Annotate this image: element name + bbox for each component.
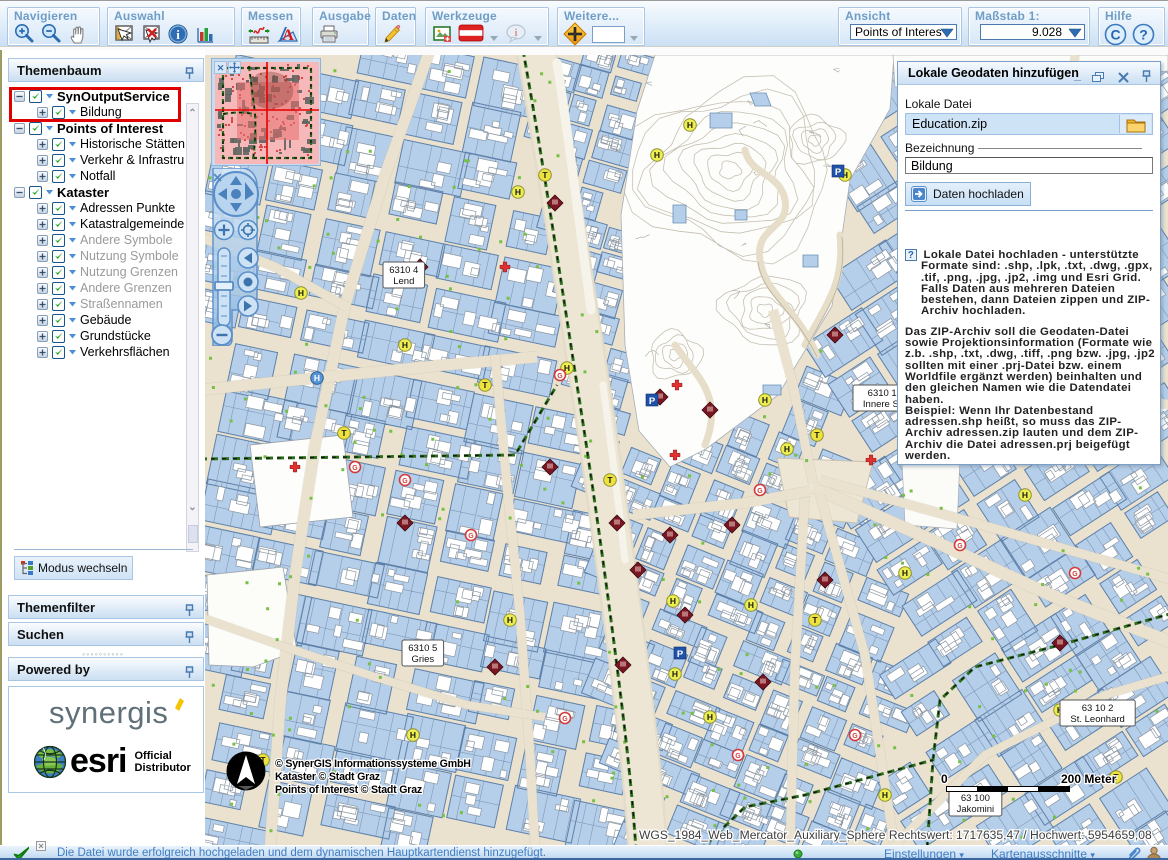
svg-text:Points of Interest © Stadt Gra: Points of Interest © Stadt Graz (275, 784, 422, 796)
svg-text:63 100: 63 100 (961, 793, 990, 804)
svg-text:Innere St: Innere St (863, 399, 902, 410)
svg-text:Lend: Lend (393, 276, 414, 287)
svg-text:H: H (410, 730, 416, 740)
svg-text:T: T (482, 380, 488, 390)
svg-text:H: H (748, 600, 754, 610)
svg-text:i: i (515, 28, 518, 39)
svg-text:?: ? (1139, 27, 1148, 43)
svg-text:H: H (882, 790, 888, 800)
svg-text:T: T (812, 615, 818, 625)
svg-text:H: H (670, 596, 676, 606)
svg-text:Kataster © Stadt Graz: Kataster © Stadt Graz (275, 771, 380, 783)
svg-text:H: H (762, 395, 768, 405)
svg-text:H: H (515, 187, 521, 197)
svg-text:H: H (1022, 490, 1028, 500)
svg-text:H: H (402, 340, 408, 350)
svg-text:H: H (507, 615, 513, 625)
svg-text:63 10 2: 63 10 2 (1082, 703, 1114, 714)
svg-text:H: H (784, 444, 790, 454)
svg-text:C: C (1110, 27, 1120, 43)
svg-text:i: i (176, 27, 180, 42)
svg-text:A: A (282, 27, 294, 44)
svg-text:6310 4: 6310 4 (389, 265, 418, 276)
svg-text:St. Leonhard: St. Leonhard (1070, 714, 1124, 725)
svg-text:G: G (557, 373, 563, 380)
svg-text:H: H (687, 120, 693, 130)
svg-text:H: H (672, 669, 678, 679)
svg-text:0: 0 (941, 772, 948, 786)
svg-text:P: P (835, 167, 842, 178)
svg-text:G: G (1072, 571, 1078, 578)
svg-text:G: G (402, 478, 408, 485)
svg-text:Gries: Gries (411, 654, 434, 665)
svg-text:H: H (314, 373, 320, 383)
svg-text:G: G (757, 488, 763, 495)
svg-text:H: H (707, 712, 713, 722)
svg-text:6310 5: 6310 5 (408, 643, 437, 654)
svg-text:P: P (649, 396, 656, 407)
svg-text:G: G (852, 733, 858, 740)
svg-text:H: H (298, 288, 304, 298)
svg-text:T: T (814, 430, 820, 440)
svg-text:T: T (341, 428, 347, 438)
svg-text:Jakomini: Jakomini (957, 804, 995, 815)
svg-text:G: G (735, 753, 741, 760)
svg-text:6310 1: 6310 1 (868, 388, 897, 399)
svg-text:T: T (607, 475, 613, 485)
svg-text:G: G (468, 533, 474, 540)
svg-text:G: G (352, 465, 358, 472)
svg-text:H: H (654, 150, 660, 160)
svg-text:H: H (902, 568, 908, 578)
svg-text:G: G (562, 716, 568, 723)
svg-text:G: G (957, 543, 963, 550)
svg-text:T: T (542, 170, 548, 180)
svg-text:WGS_1984_Web_Mercator_Auxiliar: WGS_1984_Web_Mercator_Auxiliary_Sphere R… (639, 828, 1152, 842)
svg-text:P: P (677, 649, 684, 660)
svg-text:© SynerGIS Informationssysteme: © SynerGIS Informationssysteme GmbH (275, 758, 471, 770)
svg-text:200 Meter: 200 Meter (1061, 772, 1117, 786)
